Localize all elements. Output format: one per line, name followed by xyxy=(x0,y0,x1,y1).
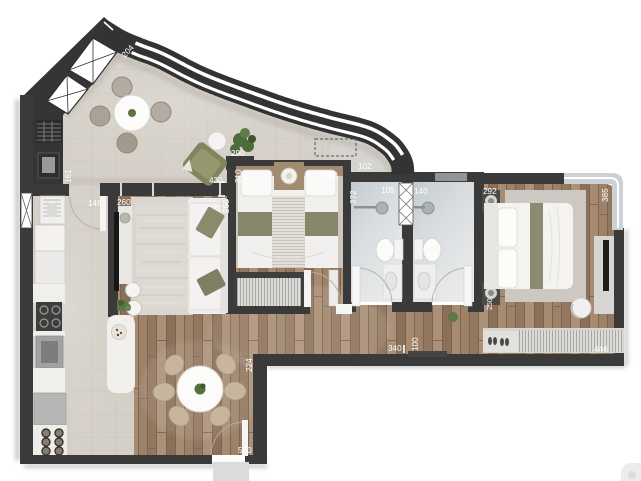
svg-text:272: 272 xyxy=(349,190,358,204)
svg-text:430: 430 xyxy=(209,176,223,185)
svg-text:500: 500 xyxy=(238,446,252,455)
svg-text:310: 310 xyxy=(234,169,243,183)
svg-text:292: 292 xyxy=(483,187,497,196)
svg-text:224: 224 xyxy=(245,358,254,372)
svg-text:100: 100 xyxy=(411,337,420,351)
svg-text:340: 340 xyxy=(388,344,402,353)
svg-text:260: 260 xyxy=(222,199,231,213)
svg-text:250: 250 xyxy=(487,298,494,310)
svg-text:146: 146 xyxy=(88,199,102,208)
svg-text:140: 140 xyxy=(414,187,428,196)
svg-text:290: 290 xyxy=(231,149,245,158)
svg-text:240: 240 xyxy=(324,171,338,180)
svg-text:446: 446 xyxy=(594,345,608,354)
svg-text:102: 102 xyxy=(358,162,372,171)
svg-text:260: 260 xyxy=(117,198,131,207)
svg-text:105: 105 xyxy=(381,186,395,195)
svg-text:161: 161 xyxy=(64,169,73,183)
svg-text:385: 385 xyxy=(601,188,610,202)
